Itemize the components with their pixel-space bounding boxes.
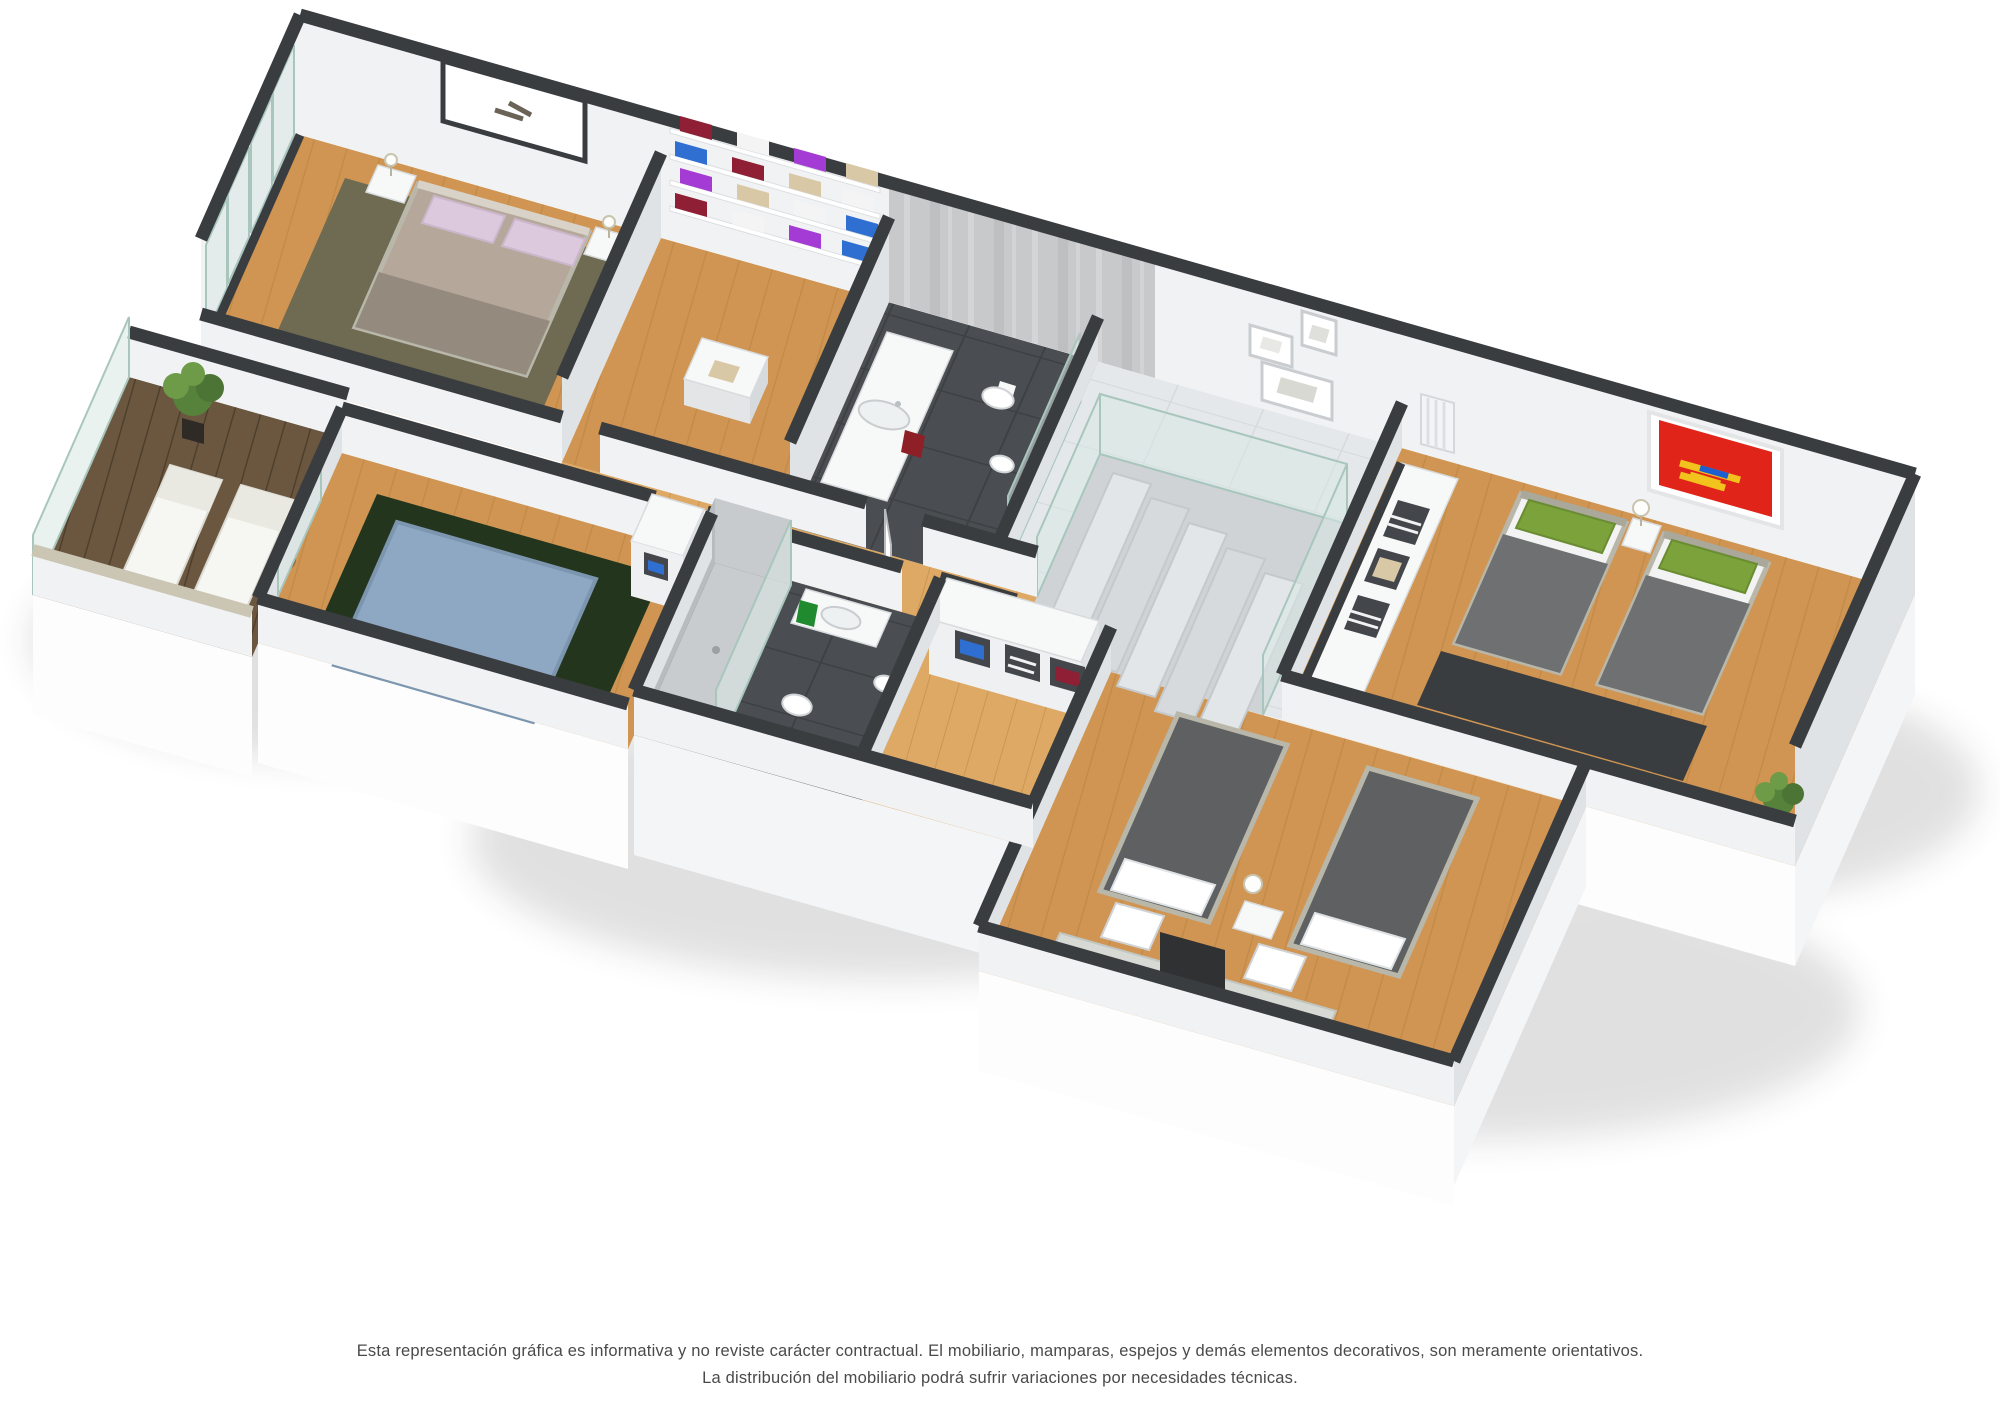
table-lamp	[1244, 875, 1262, 893]
disclaimer-line-1: Esta representación gráfica es informati…	[0, 1338, 2000, 1365]
table-lamp	[385, 154, 397, 166]
floorplan-page: Esta representación gráfica es informati…	[0, 0, 2000, 1414]
disclaimer-line-2: La distribución del mobiliario podrá suf…	[0, 1365, 2000, 1392]
disclaimer-text: Esta representación gráfica es informati…	[0, 1338, 2000, 1391]
radiator	[1421, 394, 1454, 453]
shower-drain	[712, 646, 720, 654]
table-lamp	[1633, 500, 1649, 516]
table-lamp	[603, 216, 615, 228]
faucet	[895, 401, 901, 407]
floorplan-3d-render	[0, 0, 2000, 1414]
